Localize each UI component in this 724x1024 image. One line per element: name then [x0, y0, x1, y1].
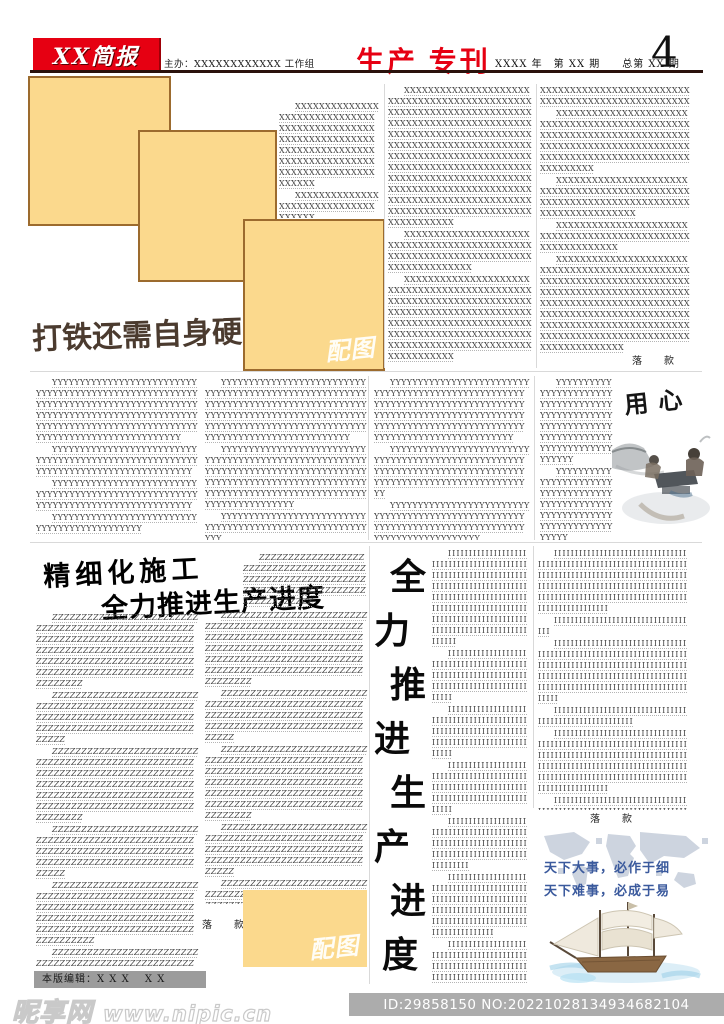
article1-column-a: XXXXXXXXXXXXXXXXXXXXXXXXXXXXXXXXXXXXXXXX…	[279, 101, 379, 218]
article1-headline: 打铁还需自身硬	[31, 306, 272, 358]
placeholder-paragraph: XXXXXXXXXXXXXXXXXXXXXXXXXXXXXXXXXXXXXXXX…	[540, 220, 690, 253]
placeholder-paragraph: YYYYYYYYYYYYYYYYYYYYYYYYYYYYYYYYYYYYYYYY…	[540, 377, 616, 465]
issue-title: 生产 专刊	[356, 40, 491, 80]
placeholder-paragraph: XXXXXXXXXXXXXXXXXXXXXXXXXXXXXXXXXXXXXXXX…	[388, 274, 534, 362]
placeholder-paragraph: ZZZZZZZZZZZZZZZZZZZZZZZZZZZZZZZZZZZZZZZZ…	[36, 947, 199, 968]
placeholder-paragraph: YYYYYYYYYYYYYYYYYYYYYYYYYYYYYYYYYYYYYYYY…	[36, 512, 198, 534]
column-divider	[384, 84, 385, 368]
watermark-site-url: www.nipic.cn	[103, 1002, 272, 1024]
placeholder-paragraph: IIIIIIIIIIIIIIIIIIIIIIIIIIIIIIIIIIIIIIII…	[538, 638, 691, 704]
placeholder-paragraph: ZZZZZZZZZZZZZZZZZZZZZZZZZZZZZZZZZZZZZZZZ…	[36, 824, 199, 879]
article4-column-2: IIIIIIIIIIIIIIIIIIIIIIIIIIIIIIIIIIIIIIII…	[538, 548, 691, 810]
article3-column-2: ZZZZZZZZZZZZZZZZZZZZZZZZZZZZZZZZZZZZZZZZ…	[205, 610, 368, 904]
ship-illustration	[542, 898, 708, 986]
placeholder-paragraph: YYYYYYYYYYYYYYYYYYYYYYYYYYYYYYYYYYYYYYYY…	[374, 377, 530, 443]
newsletter-page: XX简报 主办：XXXXXXXXXXXX 工作组 生产 专刊 XXXX 年 第 …	[0, 0, 724, 1024]
placeholder-paragraph: ZZZZZZZZZZZZZZZZZZZZZZZZZZZZZZZZZZZZZZZZ…	[36, 880, 199, 946]
article4-vertical-headline: 全力推进生产进度	[374, 550, 432, 986]
article2-column-4: YYYYYYYYYYYYYYYYYYYYYYYYYYYYYYYYYYYYYYYY…	[540, 377, 616, 540]
placeholder-paragraph: XXXXXXXXXXXXXXXXXXXXXXXXXXXXXXXXXXXXXXXX…	[540, 254, 690, 353]
editor-bar: 本版编辑：X X X X X	[34, 971, 206, 988]
placeholder-paragraph: YYYYYYYYYYYYYYYYYYYYYYYYYYYYYYYYYYYYYYYY…	[374, 444, 530, 499]
placeholder-paragraph: ZZZZZZZZZZZZZZZZZZZZZZZZZZZZZZZZZZZZZZZZ…	[205, 822, 368, 877]
article3-column2-top: ZZZZZZZZZZZZZZZZZZZZZZZZZZZZZZZZZZZZZZZZ…	[243, 552, 367, 609]
placeholder-paragraph: IIIIIIIIIIIIIIIIIIIIIIIIIIIIIIIIIIIIIIII…	[432, 939, 531, 985]
placeholder-paragraph: ZZZZZZZZZZZZZZZZZZZZZZZZZZZZZZZZZZZZZZZZ…	[205, 688, 368, 743]
article2-column-3: YYYYYYYYYYYYYYYYYYYYYYYYYYYYYYYYYYYYYYYY…	[374, 377, 530, 540]
placeholder-paragraph: ZZZZZZZZZZZZZZZZZZZZZZZZZZZZZZZZZZZZZZZZ…	[205, 610, 368, 687]
placeholder-paragraph: ZZZZZZZZZZZZZZZZZZZZZZZZZZZZZZZZZZZZZZZZ…	[36, 612, 199, 689]
placeholder-paragraph: XXXXXXXXXXXXXXXXXXXXXXXXXXXXXXXXXXXXXXXX…	[540, 175, 690, 219]
vertical-headline-char: 推	[390, 658, 432, 712]
signature-label: 落 款	[560, 352, 680, 367]
placeholder-paragraph: IIIIIIIIIIIIIIIIIIIIIIIIIIIIIIIIIIIIIIII…	[538, 548, 691, 614]
vertical-headline-char: 产	[374, 820, 432, 874]
vertical-headline-char: 全	[390, 550, 432, 604]
placeholder-paragraph: YYYYYYYYYYYYYYYYYYYYYYYYYYYYYYYYYYYYYYYY…	[374, 500, 530, 540]
vertical-headline-char: 力	[374, 604, 432, 658]
placeholder-paragraph: YYYYYYYYYYYYYYYYYYYYYYYYYYYYYYYYYYYYYYYY…	[205, 511, 367, 540]
placeholder-paragraph: IIIIIIIIIIIIIIIIIIIIIIIIIIIIIIIIIIIIIIII…	[432, 648, 531, 703]
vertical-headline-char: 度	[382, 928, 432, 982]
quote-block: 天下大事，必作于细 天下难事，必成于易	[544, 856, 714, 902]
placeholder-paragraph: ZZZZZZZZZZZZZZZZZZZZZZZZZZZZZZZZZZZZZZZZ…	[205, 744, 368, 821]
placeholder-paragraph: YYYYYYYYYYYYYYYYYYYYYYYYYYYYYYYYYYYYYYYY…	[205, 444, 367, 510]
placeholder-paragraph: XXXXXXXXXXXXXXXXXXXXXXXXXXXXXXXXXXXXXXXX…	[540, 85, 690, 107]
placeholder-paragraph: YYYYYYYYYYYYYYYYYYYYYYYYYYYYYYYYYYYYYYYY…	[36, 377, 198, 443]
masthead-box: XX简报	[33, 38, 161, 71]
ink-painting-illustration	[610, 408, 712, 536]
article4-column-1: IIIIIIIIIIIIIIIIIIIIIIIIIIIIIIIIIIIIIIII…	[432, 548, 531, 985]
section-divider	[30, 371, 702, 372]
placeholder-paragraph: XXXXXXXXXXXXXXXXXXXXXXXXXXXXXXXXXXXXXXXX…	[279, 101, 379, 189]
placeholder-paragraph: IIIIIIIIIIIIIIIIIIIIIIIIIIIIIIIIIIIIIIII…	[432, 872, 531, 938]
placeholder-paragraph: IIIIIIIIIIIIIIIIIIIIIIIIIIIIIIIIIIIIIIII…	[432, 704, 531, 759]
watermark-logo: 昵享网 www.nipic.cn	[12, 992, 272, 1024]
signature-label: 落 款	[590, 810, 690, 825]
watermark-id-bar: ID:29858150 NO:20221028134934682104	[349, 993, 724, 1016]
vertical-headline-char: 生	[390, 766, 432, 820]
placeholder-paragraph: YYYYYYYYYYYYYYYYYYYYYYYYYYYYYYYYYYYYYYYY…	[36, 478, 198, 511]
placeholder-paragraph: YYYYYYYYYYYYYYYYYYYYYYYYYYYYYYYYYYYYYYYY…	[36, 444, 198, 477]
placeholder-paragraph: IIIIIIIIIIIIIIIIIIIIIIIIIIIIIIIIIIIIIIII…	[432, 760, 531, 815]
watermark-site-name: 昵享网	[12, 998, 93, 1024]
image-placeholder-4: 配图	[243, 890, 367, 967]
column-divider	[533, 546, 534, 808]
placeholder-paragraph: IIIIIIIIIIIIIIIIIIIIIIIIIIIIIIIIIIIIIIII…	[538, 705, 691, 727]
vertical-headline-char: 进	[374, 712, 432, 766]
placeholder-paragraph: XXXXXXXXXXXXXXXXXXXXXXXXXXXXXXXXXXXXXXXX…	[388, 229, 534, 273]
placeholder-paragraph: IIIIIIIIIIIIIIIIIIIIIIIIIIIIIIIIIIIIIIII…	[538, 728, 691, 794]
placeholder-paragraph: IIIIIIIIIIIIIIIIIIIIIIIIIIIIIIIIIII	[538, 615, 691, 637]
placeholder-paragraph: XXXXXXXXXXXXXXXXXXXXXXXXXXXXXXXXXXXXXXXX…	[540, 108, 690, 174]
placeholder-paragraph: YYYYYYYYYYYYYYYYYYYYYYYYYYYYYYYYYYYYYYYY…	[540, 466, 616, 540]
ink-painting-block: 用心	[610, 380, 712, 508]
article2-column-2: YYYYYYYYYYYYYYYYYYYYYYYYYYYYYYYYYYYYYYYY…	[205, 377, 367, 540]
organizer-line: 主办：XXXXXXXXXXXX 工作组	[164, 56, 315, 70]
article3-column-1: ZZZZZZZZZZZZZZZZZZZZZZZZZZZZZZZZZZZZZZZZ…	[36, 612, 199, 968]
placeholder-paragraph: ZZZZZZZZZZZZZZZZZZZZZZZZZZZZZZZZZZZZZZZZ…	[36, 746, 199, 823]
quote-line-1: 天下大事，必作于细	[544, 856, 714, 879]
column-divider	[368, 376, 369, 540]
masthead-title: XX简报	[53, 39, 139, 71]
placeholder-paragraph: ZZZZZZZZZZZZZZZZZZZZZZZZZZZZZZZZZZZZZZZZ…	[243, 552, 367, 607]
placeholder-paragraph: ZZZZZZZZZZZZZZZZZZZZZZZZZZZZZZZZZZZZZZZZ…	[36, 690, 199, 745]
placeholder-paragraph: IIIIIIIIIIIIIIIIIIIIIIIIIIIIIIIIIIIIIIII…	[538, 795, 691, 810]
image-placeholder-label: 配图	[323, 327, 376, 367]
article2-column-1: YYYYYYYYYYYYYYYYYYYYYYYYYYYYYYYYYYYYYYYY…	[36, 377, 198, 540]
column-divider	[534, 376, 535, 540]
vertical-headline-char: 进	[390, 874, 432, 928]
placeholder-paragraph: IIIIIIIIIIIIIIIIIIIIIIIIIIIIIIIIIIIIIIII…	[432, 816, 531, 871]
placeholder-paragraph: IIIIIIIIIIIIIIIIIIIIIIIIIIIIIIIIIIIIIIII…	[432, 548, 531, 647]
article1-column-c: XXXXXXXXXXXXXXXXXXXXXXXXXXXXXXXXXXXXXXXX…	[540, 85, 690, 355]
header-rule	[30, 70, 703, 73]
image-placeholder-label: 配图	[307, 925, 360, 965]
column-divider	[536, 84, 537, 368]
placeholder-paragraph: XXXXXXXXXXXXXXXXXXXXXXXXXXXXXXXXXXXXXXXX…	[388, 85, 534, 228]
placeholder-paragraph: YYYYYYYYYYYYYYYYYYYYYYYYYYYYYYYYYYYYYYYY…	[205, 377, 367, 443]
placeholder-paragraph: XXXXXXXXXXXXXXXXXXXXXXXXXXXXXXXXXXXX	[279, 190, 379, 218]
article1-column-b: XXXXXXXXXXXXXXXXXXXXXXXXXXXXXXXXXXXXXXXX…	[388, 85, 534, 369]
